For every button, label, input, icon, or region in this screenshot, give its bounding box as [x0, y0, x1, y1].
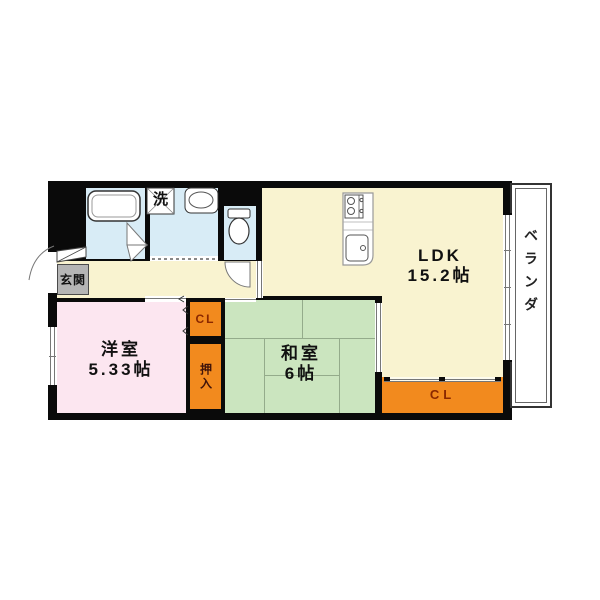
folding-door-icon — [127, 223, 147, 245]
door-chevron-marks — [179, 296, 188, 335]
laundry-label: 洗 — [147, 190, 174, 210]
japanese-room-label: 和室 6帖 — [231, 344, 371, 384]
japanese-room-label-line1: 和室 — [231, 344, 371, 364]
floor-plan: ベランダ 玄関 CL 押入 CL — [0, 0, 600, 600]
toilet-bowl — [229, 218, 249, 244]
fixtures-layer — [0, 0, 600, 600]
western-room-label: 洋室 5.33帖 — [51, 340, 191, 380]
folding-door-icon — [127, 245, 147, 261]
ldk-label-line1: LDK — [360, 246, 520, 266]
japanese-room-label-line2: 6帖 — [231, 364, 371, 384]
toilet-icon — [228, 209, 250, 218]
wash-basin-bowl — [189, 192, 213, 208]
swing-door-icon — [225, 262, 250, 287]
ldk-label: LDK 15.2帖 — [360, 246, 520, 286]
western-room-label-line1: 洋室 — [51, 340, 191, 360]
western-room-label-line2: 5.33帖 — [51, 360, 191, 380]
entrance-door-arc — [29, 246, 54, 280]
ldk-label-line2: 15.2帖 — [360, 266, 520, 286]
